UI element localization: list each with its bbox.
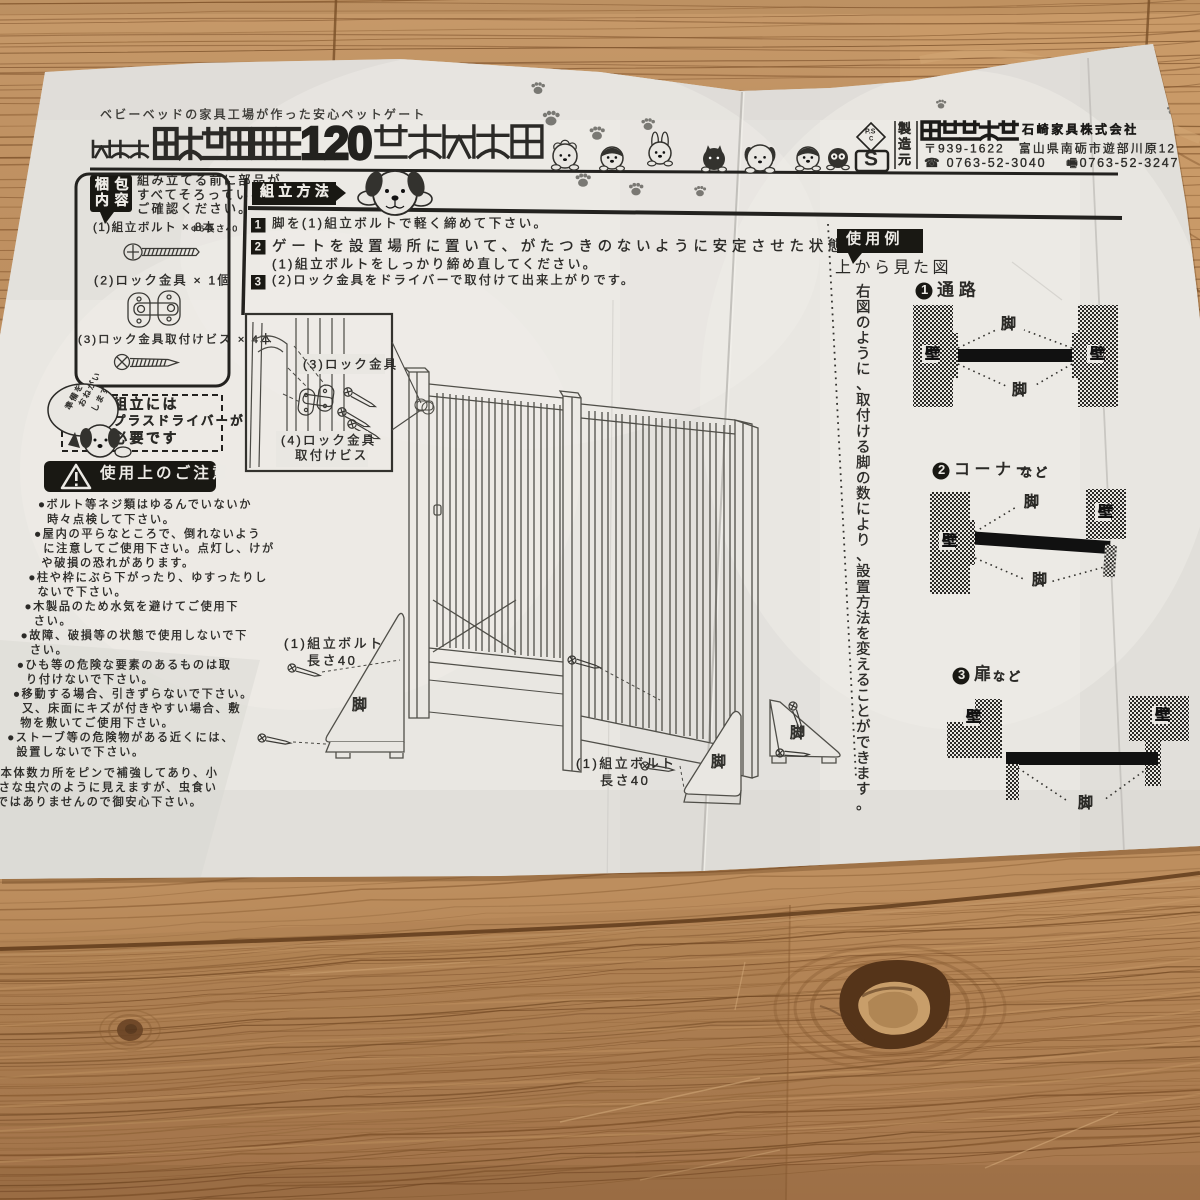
svg-text:長さ40: 長さ40 — [307, 653, 357, 668]
svg-text:方: 方 — [856, 594, 875, 611]
svg-text:数: 数 — [856, 486, 875, 503]
svg-text:壁: 壁 — [1098, 504, 1119, 521]
svg-text:図: 図 — [856, 299, 875, 316]
svg-text:〒939-1622 富山県南砺市遊部川原12: 〒939-1622 富山県南砺市遊部川原12 — [924, 140, 1176, 155]
svg-text:脚: 脚 — [1024, 494, 1044, 511]
svg-text:、: 、 — [856, 378, 875, 394]
svg-text:必要です: 必要です — [112, 430, 179, 446]
svg-text:長さ40: 長さ40 — [600, 773, 650, 788]
svg-text:C: C — [869, 137, 874, 143]
svg-text:脚: 脚 — [790, 725, 810, 742]
svg-text:壁: 壁 — [1155, 707, 1176, 724]
svg-text:り: り — [856, 533, 875, 549]
svg-text:●故障、破損等の状態で使用しないで下: ●故障、破損等の状態で使用しないで下 — [21, 628, 248, 642]
svg-text:や破損の恐れがあります。: や破損の恐れがあります。 — [41, 555, 195, 569]
svg-text:使用上のご注意: 使用上のご注意 — [99, 463, 231, 482]
svg-text:上から見た図: 上から見た図 — [835, 259, 952, 277]
svg-text:る: る — [856, 440, 875, 456]
svg-text:2: 2 — [938, 462, 945, 477]
svg-text:設: 設 — [856, 563, 875, 580]
svg-text:脚: 脚 — [711, 754, 731, 771]
svg-text:に: に — [856, 362, 875, 378]
svg-text:え: え — [856, 658, 875, 674]
svg-text:け: け — [856, 424, 875, 440]
svg-text:法: 法 — [856, 610, 875, 627]
svg-text:(4)ロック金具: (4)ロック金具 — [281, 433, 377, 448]
svg-text:など: など — [993, 669, 1023, 683]
svg-text:本体数カ所をピンで補強してあり、小: 本体数カ所をピンで補強してあり、小 — [1, 766, 219, 780]
svg-text:(3)ロック金具: (3)ロック金具 — [303, 357, 399, 372]
svg-text:通路: 通路 — [937, 279, 981, 299]
svg-text:1: 1 — [921, 282, 928, 297]
svg-text:を: を — [856, 625, 875, 642]
svg-text:脚: 脚 — [1012, 382, 1032, 399]
svg-text:●柱や枠にぶら下がったり、ゆすったりし: ●柱や枠にぶら下がったり、ゆすったりし — [28, 570, 268, 584]
svg-text:脚: 脚 — [1032, 572, 1052, 589]
svg-text:組立には: 組立には — [113, 396, 179, 412]
svg-text:す: す — [856, 781, 875, 798]
svg-text:が: が — [856, 719, 875, 736]
svg-text:よ: よ — [856, 518, 875, 534]
svg-text:組立方法: 組立方法 — [260, 183, 333, 199]
svg-text:右: 右 — [856, 283, 875, 300]
svg-text:ないで下さい。: ないで下さい。 — [38, 586, 128, 599]
svg-text:脚: 脚 — [352, 697, 372, 714]
svg-text:き: き — [856, 750, 875, 767]
svg-text:石崎家具株式会社: 石崎家具株式会社 — [1021, 121, 1139, 136]
svg-text:と: と — [856, 704, 875, 720]
svg-text:取: 取 — [856, 393, 875, 409]
svg-text:Φ6長さ40: Φ6長さ40 — [191, 224, 239, 234]
svg-text:元: 元 — [898, 152, 915, 167]
svg-text:。: 。 — [856, 798, 875, 814]
svg-text:壁: 壁 — [966, 709, 987, 726]
svg-text:、: 、 — [856, 549, 875, 565]
svg-text:内容: 内容 — [95, 192, 134, 208]
svg-text:120: 120 — [300, 117, 371, 169]
svg-text:で: で — [856, 735, 875, 751]
svg-text:時々点検して下さい。: 時々点検して下さい。 — [47, 512, 176, 526]
svg-text:など: など — [1020, 465, 1050, 479]
svg-text:変: 変 — [856, 641, 875, 658]
svg-text:●ひも等の危険な要素のあるものは取: ●ひも等の危険な要素のあるものは取 — [17, 657, 232, 671]
svg-text:設置しないで下さい。: 設置しないで下さい。 — [16, 745, 145, 759]
svg-text:●木製品のため水気を避けてご使用下: ●木製品のため水気を避けてご使用下 — [25, 599, 240, 613]
svg-text:(1)組立ボルト: (1)組立ボルト — [576, 756, 677, 771]
svg-text:う: う — [856, 347, 875, 363]
svg-text:製: 製 — [897, 121, 915, 136]
svg-text:よ: よ — [856, 331, 875, 347]
svg-text:2: 2 — [255, 242, 261, 254]
svg-text:壁: 壁 — [1090, 346, 1111, 363]
svg-text:(1)組立ボルト: (1)組立ボルト — [284, 636, 385, 651]
svg-text:さい。: さい。 — [34, 615, 73, 628]
svg-text:ま: ま — [856, 766, 875, 782]
svg-text:●移動する場合、引きずらないで下さい。: ●移動する場合、引きずらないで下さい。 — [13, 686, 253, 700]
svg-text:付: 付 — [856, 408, 875, 425]
svg-text:使用例: 使用例 — [845, 230, 904, 248]
svg-text:置: 置 — [856, 580, 875, 596]
svg-text:造: 造 — [898, 137, 915, 152]
svg-text:物を敷いてご使用下さい。: 物を敷いてご使用下さい。 — [20, 716, 174, 730]
svg-text:脚: 脚 — [1078, 795, 1098, 812]
svg-text:さな虫穴のように見えますが、虫食い: さな虫穴のように見えますが、虫食い — [0, 780, 218, 794]
svg-text:脚: 脚 — [1001, 316, 1021, 333]
svg-text:3: 3 — [958, 667, 965, 682]
svg-text:プラスドライバーが: プラスドライバーが — [113, 413, 245, 428]
svg-text:●屋内の平らなところで、倒れないよう: ●屋内の平らなところで、倒れないよう — [34, 526, 261, 540]
svg-text:●ボルト等ネジ類はゆるんでいないか: ●ボルト等ネジ類はゆるんでいないか — [38, 497, 252, 511]
svg-text:(3)ロック金具取付けビス × 4本: (3)ロック金具取付けビス × 4本 — [78, 332, 273, 346]
svg-text:壁: 壁 — [925, 346, 946, 363]
svg-text:☎ 0763-52-3040 🖷0763-52-3247: ☎ 0763-52-3040 🖷0763-52-3247 — [924, 156, 1179, 170]
svg-text:ベビーベッドの家具工場が作った安心ペットゲート: ベビーベッドの家具工場が作った安心ペットゲート — [100, 106, 427, 121]
svg-text:る: る — [856, 673, 875, 689]
svg-text:取付けビス: 取付けビス — [295, 449, 368, 463]
svg-text:(2)ロック金具をドライバーで取付けて出来上がりです。: (2)ロック金具をドライバーで取付けて出来上がりです。 — [272, 272, 635, 287]
svg-text:に: に — [856, 502, 875, 518]
svg-text:ゲートを設置場所に置いて、がたつきのないように安定させた状態: ゲートを設置場所に置いて、がたつきのないように安定させた状態で — [272, 238, 866, 255]
svg-text:(2)ロック金具 × 1個: (2)ロック金具 × 1個 — [94, 273, 232, 288]
svg-text:壁: 壁 — [942, 533, 963, 550]
svg-text:ではありませんので御安心下さい。: ではありませんので御安心下さい。 — [0, 795, 203, 809]
svg-text:又、床面にキズが付きやすい場合、敷: 又、床面にキズが付きやすい場合、敷 — [22, 701, 241, 715]
svg-text:(1)組立ボルトをしっかり締め直してください。: (1)組立ボルトをしっかり締め直してください。 — [272, 257, 598, 272]
svg-text:に注意してご使用下さい。点灯し、けが: に注意してご使用下さい。点灯し、けが — [43, 541, 275, 555]
svg-text:り付けないで下さい。: り付けないで下さい。 — [26, 673, 155, 686]
svg-text:脚を(1)組立ボルトで軽く締めて下さい。: 脚を(1)組立ボルトで軽く締めて下さい。 — [272, 215, 549, 230]
svg-text:の: の — [856, 315, 875, 331]
svg-text:S: S — [864, 147, 878, 170]
svg-text:1: 1 — [255, 220, 262, 232]
svg-text:ご確認ください。: ご確認ください。 — [137, 201, 253, 216]
svg-text:P.S: P.S — [865, 129, 876, 136]
svg-text:の: の — [856, 471, 875, 487]
svg-text:梱包: 梱包 — [95, 176, 134, 192]
svg-text:3: 3 — [255, 277, 261, 289]
svg-text:さい。: さい。 — [30, 644, 69, 657]
svg-text:こ: こ — [856, 689, 875, 705]
svg-text:●ストーブ等の危険物がある近くには、: ●ストーブ等の危険物がある近くには、 — [7, 730, 234, 744]
svg-text:脚: 脚 — [856, 454, 875, 471]
